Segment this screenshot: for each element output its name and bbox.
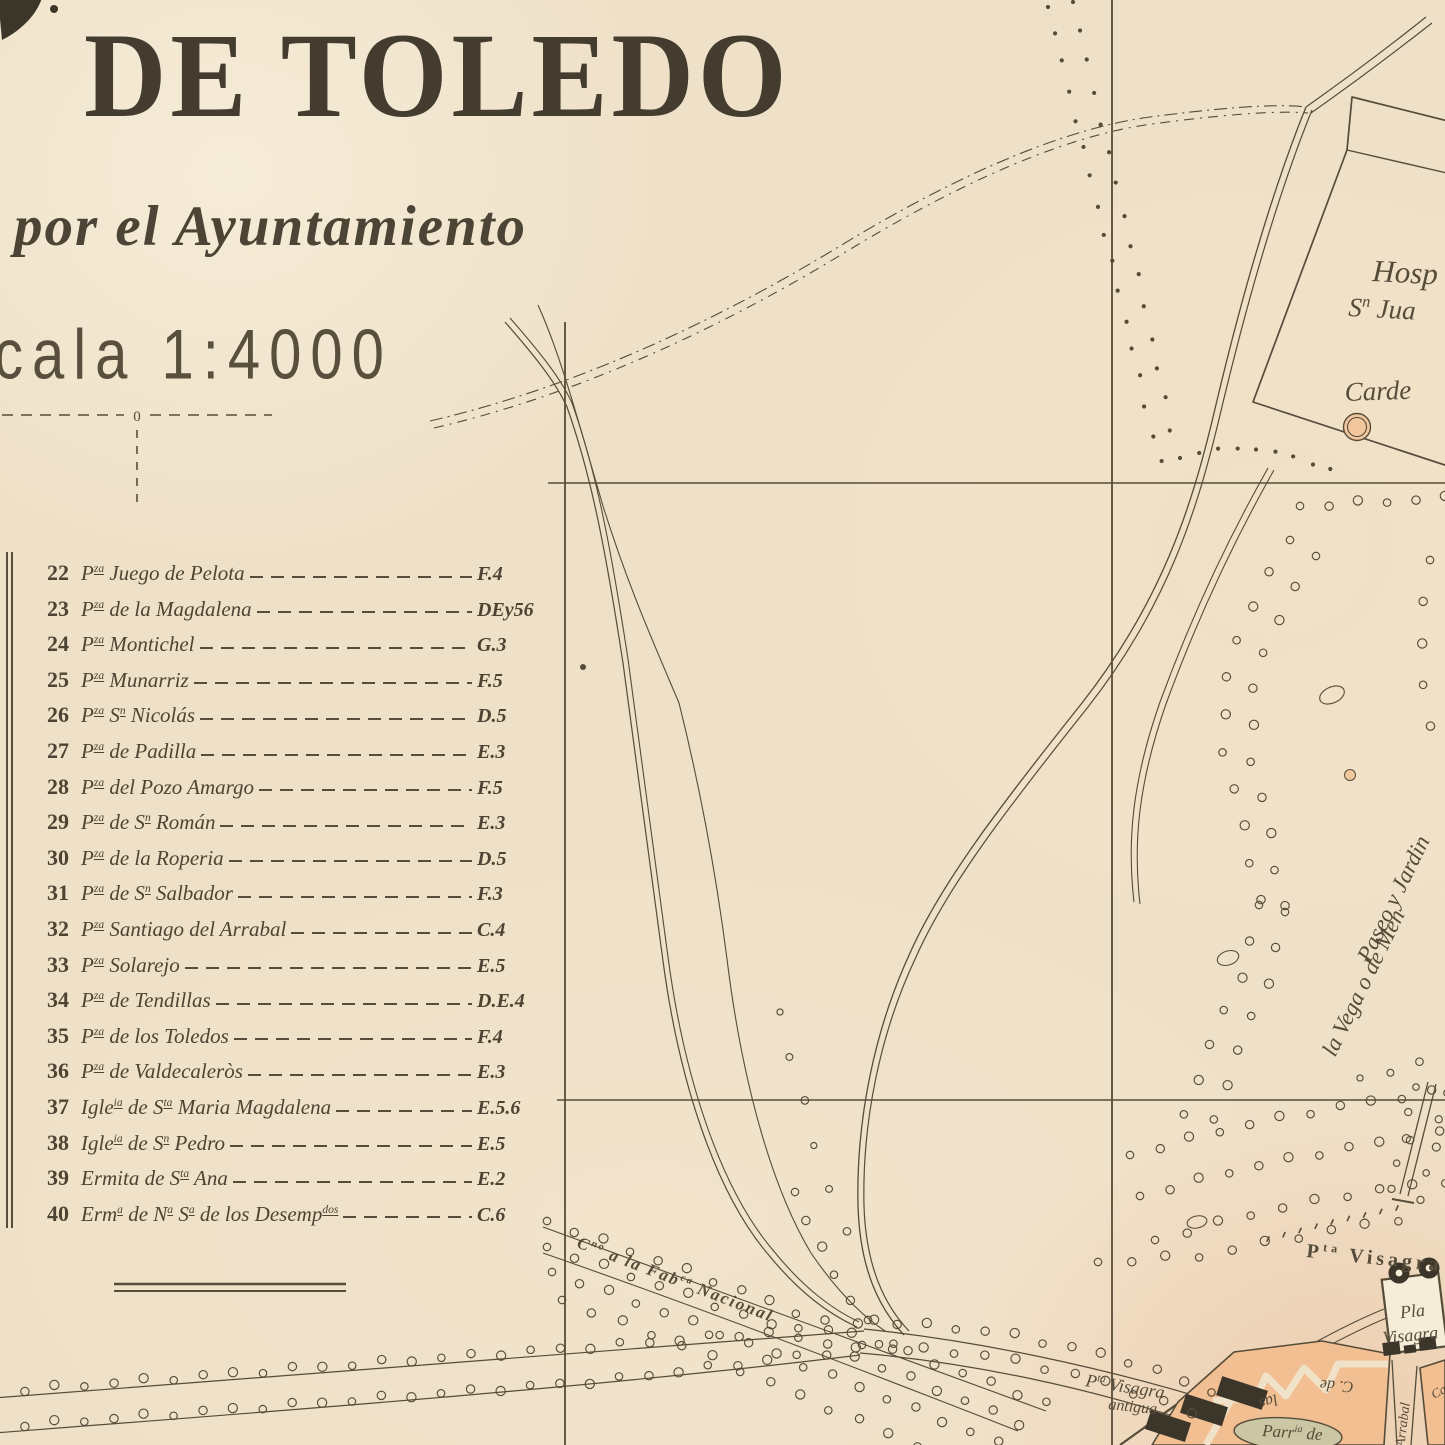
legend-entry-number: 38 bbox=[29, 1125, 69, 1161]
tree-circle bbox=[438, 1354, 445, 1361]
tree-circle bbox=[1357, 1075, 1363, 1081]
map-dot bbox=[580, 664, 586, 670]
tree-circle bbox=[708, 1351, 717, 1360]
title-letter-fragment bbox=[50, 5, 58, 13]
tree-circle bbox=[1327, 1225, 1335, 1233]
tree-circle bbox=[1271, 866, 1278, 873]
tree-circle bbox=[1398, 1095, 1405, 1102]
tree-circle bbox=[1258, 793, 1266, 801]
tree-circle bbox=[855, 1382, 864, 1391]
legend-row: 30Pza de la RoperiaD.5 bbox=[29, 837, 543, 873]
tree-circle bbox=[735, 1332, 743, 1340]
tree-circle bbox=[110, 1379, 118, 1387]
tree-dot bbox=[1102, 233, 1106, 237]
map-scale-label: cala 1:4000 bbox=[0, 314, 393, 396]
tree-circle bbox=[1124, 1360, 1131, 1367]
tree-circle bbox=[1219, 749, 1226, 756]
tree-circle bbox=[1096, 1348, 1105, 1357]
tree-circle bbox=[1041, 1366, 1048, 1373]
tree-circle bbox=[646, 1339, 654, 1347]
tree-circle bbox=[21, 1422, 29, 1430]
legend-entry-number: 35 bbox=[29, 1018, 69, 1054]
tree-circle bbox=[907, 1372, 915, 1380]
tree-circle bbox=[1387, 1069, 1394, 1076]
legend-entry-number: 27 bbox=[29, 733, 69, 769]
legend-entry-label: Pza de los Toledos bbox=[81, 1015, 229, 1055]
legend-entry-number: 28 bbox=[29, 769, 69, 805]
tree-circle bbox=[1435, 1127, 1443, 1135]
tree-circle bbox=[1195, 1254, 1202, 1261]
tree-circle bbox=[548, 1268, 555, 1275]
tree-circle bbox=[50, 1416, 59, 1425]
legend-entry-number: 36 bbox=[29, 1053, 69, 1089]
tree-dot bbox=[1122, 214, 1126, 218]
tree-dot bbox=[1160, 459, 1164, 463]
paseo-path bbox=[1137, 470, 1274, 904]
legend-row: 38Igleia de Sn PedroE.5 bbox=[29, 1122, 543, 1158]
tree-dot bbox=[1151, 434, 1155, 438]
tree-circle bbox=[1423, 1170, 1429, 1176]
tree-dot bbox=[1273, 449, 1277, 453]
tick-mark bbox=[1331, 1219, 1334, 1224]
tick-mark bbox=[1380, 1209, 1383, 1214]
tree-circle bbox=[823, 1351, 831, 1359]
tree-circle bbox=[682, 1264, 691, 1273]
tick-mark bbox=[1299, 1228, 1302, 1233]
tree-circle bbox=[818, 1242, 827, 1251]
tree-circle bbox=[932, 1386, 941, 1395]
legend-leader-line bbox=[216, 1003, 472, 1005]
tree-circle bbox=[556, 1344, 564, 1352]
tree-circle bbox=[961, 1397, 968, 1404]
tree-circle bbox=[802, 1216, 810, 1224]
legend-grid-reference: E.5 bbox=[477, 949, 543, 985]
tree-dot bbox=[1085, 57, 1089, 61]
tree-dot bbox=[1073, 119, 1077, 123]
legend-row: 36Pza de ValdecaleròsE.3 bbox=[29, 1050, 543, 1086]
tree-circle bbox=[527, 1346, 534, 1353]
legend-entry-label: Pza del Pozo Amargo bbox=[81, 766, 254, 806]
legend-leader-line bbox=[194, 682, 472, 684]
legend-row: 40Erma de Na Sa de los DesempdosC.6 bbox=[29, 1193, 543, 1229]
avenue-southwest-line bbox=[0, 1355, 860, 1433]
road-west bbox=[430, 106, 1306, 421]
tree-circle bbox=[1264, 979, 1273, 988]
tree-circle bbox=[228, 1403, 237, 1412]
tree-circle bbox=[786, 1054, 793, 1061]
tree-circle bbox=[1419, 597, 1427, 605]
tree-circle bbox=[1210, 1116, 1217, 1123]
tree-circle bbox=[1228, 1246, 1236, 1254]
legend-leader-line bbox=[257, 611, 472, 613]
tree-circle bbox=[199, 1406, 207, 1414]
tree-dot bbox=[1150, 337, 1154, 341]
tree-circle bbox=[1345, 1142, 1353, 1150]
garden-path bbox=[1400, 1082, 1428, 1194]
tree-circle bbox=[989, 1406, 997, 1414]
legend-row: 22Pza Juego de PelotaF.4 bbox=[29, 552, 543, 588]
legend-leader-line bbox=[343, 1216, 472, 1218]
tree-circle bbox=[604, 1285, 613, 1294]
tree-circle bbox=[922, 1318, 931, 1327]
legend-entry-label: Pza de Sn Salbador bbox=[81, 872, 233, 912]
tree-circle bbox=[1039, 1340, 1046, 1347]
legend-entry-number: 34 bbox=[29, 982, 69, 1018]
tree-circle bbox=[878, 1365, 885, 1372]
tree-circle bbox=[1325, 502, 1333, 510]
tree-circle bbox=[1220, 1006, 1227, 1013]
legend-leader-line bbox=[336, 1110, 472, 1112]
tree-dot bbox=[1128, 244, 1132, 248]
legend-leader-line bbox=[230, 1145, 472, 1147]
tree-dot bbox=[1099, 123, 1103, 127]
legend-leader-line bbox=[234, 1038, 472, 1040]
tree-circle bbox=[1279, 1204, 1287, 1212]
tree-circle bbox=[937, 1417, 946, 1426]
tree-circle bbox=[1225, 1170, 1232, 1177]
tree-dot bbox=[1114, 180, 1118, 184]
tree-dot bbox=[1081, 145, 1085, 149]
legend-grid-reference: E.3 bbox=[477, 1055, 543, 1091]
legend-entry-number: 30 bbox=[29, 840, 69, 876]
garden-path-endcap bbox=[1392, 1199, 1414, 1203]
legend-entry-label: Pza de Sn Román bbox=[81, 801, 215, 841]
tree-circle bbox=[1255, 901, 1262, 908]
legend-row: 32Pza Santiago del ArrabalC.4 bbox=[29, 908, 543, 944]
legend-leader-line bbox=[229, 860, 472, 862]
tree-circle bbox=[792, 1310, 799, 1317]
tree-circle bbox=[855, 1415, 863, 1423]
tree-circle bbox=[288, 1362, 296, 1370]
legend-row: 23Pza de la MagdalenaDEy56 bbox=[29, 588, 543, 624]
tree-circle bbox=[824, 1340, 832, 1348]
tree-circle bbox=[1426, 556, 1433, 563]
map-label: 0 bbox=[133, 409, 141, 425]
legend-entry-number: 23 bbox=[29, 591, 69, 627]
legend-leader-line bbox=[185, 967, 472, 969]
legend-row: 33Pza SolarejoE.5 bbox=[29, 944, 543, 980]
legend-entry-number: 39 bbox=[29, 1160, 69, 1196]
tree-circle bbox=[615, 1373, 622, 1380]
tree-dot bbox=[1078, 28, 1082, 32]
tree-circle bbox=[675, 1336, 684, 1345]
visagra-bastion bbox=[1404, 1344, 1417, 1353]
tree-circle bbox=[1222, 673, 1230, 681]
tree-circle bbox=[1383, 499, 1390, 506]
building-hospital-partition bbox=[1347, 150, 1445, 176]
legend-row: 25Pza MunarrizF.5 bbox=[29, 659, 543, 695]
legend-grid-reference: D.E.4 bbox=[477, 984, 543, 1020]
legend-entry-number: 22 bbox=[29, 555, 69, 591]
tree-circle bbox=[1194, 1173, 1203, 1182]
legend-entry-number: 25 bbox=[29, 662, 69, 698]
tree-circle bbox=[793, 1351, 800, 1358]
tree-circle bbox=[689, 1316, 698, 1325]
tree-circle bbox=[618, 1316, 627, 1325]
tree-circle bbox=[288, 1398, 296, 1406]
legend-leader-line bbox=[238, 896, 472, 898]
map-label: Pla bbox=[1398, 1300, 1426, 1323]
tree-circle bbox=[853, 1319, 862, 1328]
tree-circle bbox=[1180, 1377, 1189, 1386]
map-subtitle: por el Ayuntamiento bbox=[14, 194, 527, 259]
tick-mark bbox=[1283, 1232, 1286, 1237]
legend-entry-number: 37 bbox=[29, 1089, 69, 1125]
tree-dot bbox=[1067, 90, 1071, 94]
tree-circle bbox=[1183, 1229, 1191, 1237]
legend-entry-label: Erma de Na Sa de los Desempdos bbox=[81, 1193, 338, 1233]
tree-circle bbox=[777, 1009, 783, 1015]
tree-circle bbox=[1245, 937, 1253, 945]
map-label: Sn​ Jua bbox=[1348, 292, 1417, 326]
legend-grid-reference: E.5 bbox=[477, 1127, 543, 1163]
legend-grid-reference: F.4 bbox=[477, 1020, 543, 1056]
tree-circle bbox=[1136, 1192, 1143, 1199]
tree-circle bbox=[791, 1188, 798, 1195]
tree-circle bbox=[466, 1385, 474, 1393]
tree-circle bbox=[1233, 636, 1240, 643]
legend-entry-label: Pza de Valdecaleròs bbox=[81, 1050, 243, 1090]
legend-grid-reference: E.5.6 bbox=[477, 1091, 543, 1127]
tree-circle bbox=[1230, 785, 1238, 793]
tree-circle bbox=[1395, 1218, 1402, 1225]
tree-circle bbox=[467, 1349, 475, 1357]
garden-bed bbox=[1215, 948, 1240, 968]
tree-circle bbox=[1156, 1144, 1164, 1152]
tree-circle bbox=[1071, 1369, 1079, 1377]
tree-circle bbox=[1413, 1084, 1419, 1090]
legend-entry-label: Igleia de Sn Pedro bbox=[81, 1122, 225, 1162]
tree-circle bbox=[1275, 615, 1284, 624]
tree-dot bbox=[1197, 451, 1201, 455]
tree-circle bbox=[987, 1377, 995, 1385]
tree-circle bbox=[912, 1403, 920, 1411]
road-north bbox=[1306, 17, 1426, 107]
tree-circle bbox=[825, 1407, 832, 1414]
tree-circle bbox=[1360, 1219, 1369, 1228]
tree-circle bbox=[543, 1243, 550, 1250]
tree-circle bbox=[919, 1343, 928, 1352]
tree-circle bbox=[875, 1340, 882, 1347]
tree-circle bbox=[1296, 502, 1303, 509]
tree-circle bbox=[1388, 1185, 1395, 1192]
legend-row: 31Pza de Sn SalbadorF.3 bbox=[29, 872, 543, 908]
legend-entry-label: Pza de la Magdalena bbox=[81, 588, 252, 628]
tree-circle bbox=[1094, 1258, 1101, 1265]
legend-entry-label: Pza Juego de Pelota bbox=[81, 552, 245, 592]
tree-circle bbox=[981, 1351, 989, 1359]
tree-circle bbox=[1426, 722, 1434, 730]
map-title: DE TOLEDO bbox=[84, 6, 791, 146]
tree-circle bbox=[1344, 1193, 1351, 1200]
tree-circle bbox=[259, 1369, 266, 1376]
tree-circle bbox=[1245, 1120, 1253, 1128]
legend-entry-label: Ermita de Sta Ana bbox=[81, 1157, 228, 1197]
tree-circle bbox=[1286, 536, 1293, 543]
tree-circle bbox=[1213, 1216, 1222, 1225]
legend-entry-label: Pza Montichel bbox=[81, 623, 195, 663]
legend-leader-line bbox=[248, 1074, 472, 1076]
legend-grid-reference: DEy56 bbox=[477, 593, 543, 629]
tree-circle bbox=[1043, 1398, 1050, 1405]
legend-grid-reference: C.6 bbox=[477, 1198, 543, 1234]
tree-dot bbox=[1046, 5, 1050, 9]
legend-leader-line bbox=[259, 789, 472, 791]
legend-row: 29Pza de Sn RománE.3 bbox=[29, 801, 543, 837]
tree-circle bbox=[1126, 1151, 1133, 1158]
tree-circle bbox=[846, 1296, 854, 1304]
tree-circle bbox=[1161, 1251, 1170, 1260]
tick-mark bbox=[1315, 1224, 1318, 1229]
legend-grid-reference: E.3 bbox=[477, 735, 543, 771]
legend-grid-reference: F.4 bbox=[477, 557, 543, 593]
tree-circle bbox=[795, 1334, 802, 1341]
tree-circle bbox=[767, 1378, 775, 1386]
map-label: Carde bbox=[1344, 375, 1412, 407]
tree-circle bbox=[1216, 1128, 1223, 1135]
tree-circle bbox=[1238, 973, 1247, 982]
tree-circle bbox=[950, 1350, 957, 1357]
map-label: la Vega o de Men bbox=[1317, 905, 1409, 1059]
tree-dot bbox=[1216, 446, 1220, 450]
tree-circle bbox=[81, 1383, 88, 1390]
tree-circle bbox=[716, 1331, 723, 1338]
tree-circle bbox=[1312, 552, 1319, 559]
tree-circle bbox=[377, 1391, 385, 1399]
tree-circle bbox=[890, 1340, 897, 1347]
tree-dot bbox=[1107, 150, 1111, 154]
tree-dot bbox=[1138, 373, 1142, 377]
tree-dot bbox=[1092, 91, 1096, 95]
legend-row: 28Pza del Pozo AmargoF.5 bbox=[29, 766, 543, 802]
tree-circle bbox=[883, 1396, 890, 1403]
tree-circle bbox=[1307, 1110, 1314, 1117]
tree-circle bbox=[1221, 710, 1230, 719]
tree-circle bbox=[1151, 1236, 1158, 1243]
legend-grid-reference: D.5 bbox=[477, 699, 543, 735]
legend-entry-number: 26 bbox=[29, 697, 69, 733]
legend-entry-number: 33 bbox=[29, 947, 69, 983]
tree-dot bbox=[1291, 454, 1295, 458]
tree-dot bbox=[1168, 428, 1172, 432]
city-block bbox=[1420, 1360, 1445, 1445]
road-hospital-south bbox=[858, 107, 1306, 1335]
tree-circle bbox=[796, 1390, 805, 1399]
tree-circle bbox=[81, 1418, 88, 1425]
tree-dot bbox=[1096, 205, 1100, 209]
legend-entry-label: Pza de Tendillas bbox=[81, 979, 211, 1019]
tree-dot bbox=[1178, 456, 1182, 460]
legend-grid-reference: D.5 bbox=[477, 842, 543, 878]
road-branch-a bbox=[505, 322, 857, 1327]
tree-circle bbox=[705, 1331, 712, 1338]
tree-circle bbox=[1271, 943, 1279, 951]
legend-entry-label: Pza Sn Nicolás bbox=[81, 694, 195, 734]
tree-circle bbox=[1375, 1137, 1384, 1146]
tree-circle bbox=[1295, 1235, 1302, 1242]
map-label: Cno​ a la Fabca​ Nacional bbox=[575, 1233, 777, 1326]
tree-dot bbox=[1124, 320, 1128, 324]
tree-circle bbox=[1432, 1143, 1440, 1151]
legend-row: 24Pza MontichelG.3 bbox=[29, 623, 543, 659]
tree-circle bbox=[904, 1346, 912, 1354]
legend-entry-label: Pza de la Roperia bbox=[81, 837, 224, 877]
tree-circle bbox=[995, 1437, 1003, 1445]
tree-dot bbox=[1328, 467, 1332, 471]
tree-dot bbox=[1053, 31, 1057, 35]
legend-grid-reference: E.3 bbox=[477, 806, 543, 842]
tree-circle bbox=[1128, 1258, 1136, 1266]
tree-circle bbox=[570, 1228, 578, 1236]
tree-circle bbox=[828, 1370, 836, 1378]
legend-entry-label: Pza Solarejo bbox=[81, 944, 180, 984]
tree-circle bbox=[1205, 1040, 1213, 1048]
legend-entry-number: 31 bbox=[29, 875, 69, 911]
tree-circle bbox=[1249, 684, 1257, 692]
tree-circle bbox=[199, 1371, 207, 1379]
tree-dot bbox=[1142, 404, 1146, 408]
tree-circle bbox=[1153, 1365, 1161, 1373]
tree-circle bbox=[1405, 1108, 1412, 1115]
tree-circle bbox=[799, 1364, 806, 1371]
tree-circle bbox=[1166, 1186, 1174, 1194]
road-branch-b bbox=[538, 305, 885, 1331]
tree-circle bbox=[1412, 496, 1420, 504]
tree-dot bbox=[1137, 272, 1141, 276]
tree-circle bbox=[843, 1228, 851, 1236]
tree-circle bbox=[1255, 1162, 1263, 1170]
legend-entry-label: Pza Munarriz bbox=[81, 659, 189, 699]
tree-circle bbox=[1435, 1116, 1442, 1123]
tree-circle bbox=[1416, 1058, 1424, 1066]
tree-circle bbox=[1417, 1196, 1424, 1203]
tree-circle bbox=[139, 1374, 148, 1383]
road-branch-a bbox=[510, 318, 859, 1322]
tree-circle bbox=[570, 1254, 578, 1262]
tree-circle bbox=[821, 1316, 829, 1324]
tree-circle bbox=[1249, 720, 1258, 729]
tree-dot bbox=[1254, 447, 1258, 451]
legend-entry-number: 40 bbox=[29, 1196, 69, 1232]
tree-dot bbox=[1071, 0, 1075, 4]
tree-circle bbox=[1275, 1111, 1284, 1120]
tree-dot bbox=[1060, 58, 1064, 62]
legend-index: 22Pza Juego de PelotaF.423Pza de la Magd… bbox=[6, 552, 543, 1228]
tree-dot bbox=[1116, 289, 1120, 293]
tree-circle bbox=[1194, 1075, 1203, 1084]
tree-circle bbox=[1336, 1101, 1344, 1109]
legend-entry-label: Igleia de Sta Maria Magdalena bbox=[81, 1086, 331, 1126]
tree-circle bbox=[170, 1412, 177, 1419]
tree-circle bbox=[526, 1381, 533, 1388]
tree-circle bbox=[1284, 1153, 1293, 1162]
tree-circle bbox=[1291, 582, 1299, 590]
tree-circle bbox=[660, 1309, 668, 1317]
tree-circle bbox=[648, 1331, 655, 1338]
tree-circle bbox=[1316, 1152, 1323, 1159]
tree-circle bbox=[348, 1398, 355, 1405]
tree-circle bbox=[1240, 821, 1249, 830]
tree-circle bbox=[170, 1376, 177, 1383]
tree-dot bbox=[1142, 304, 1146, 308]
tree-circle bbox=[826, 1186, 833, 1193]
legend-grid-reference: C.4 bbox=[477, 913, 543, 949]
tree-circle bbox=[1247, 1012, 1254, 1019]
tree-circle bbox=[543, 1217, 550, 1224]
legend-grid-reference: F.3 bbox=[477, 877, 543, 913]
tree-circle bbox=[496, 1386, 505, 1395]
tree-circle bbox=[378, 1355, 386, 1363]
